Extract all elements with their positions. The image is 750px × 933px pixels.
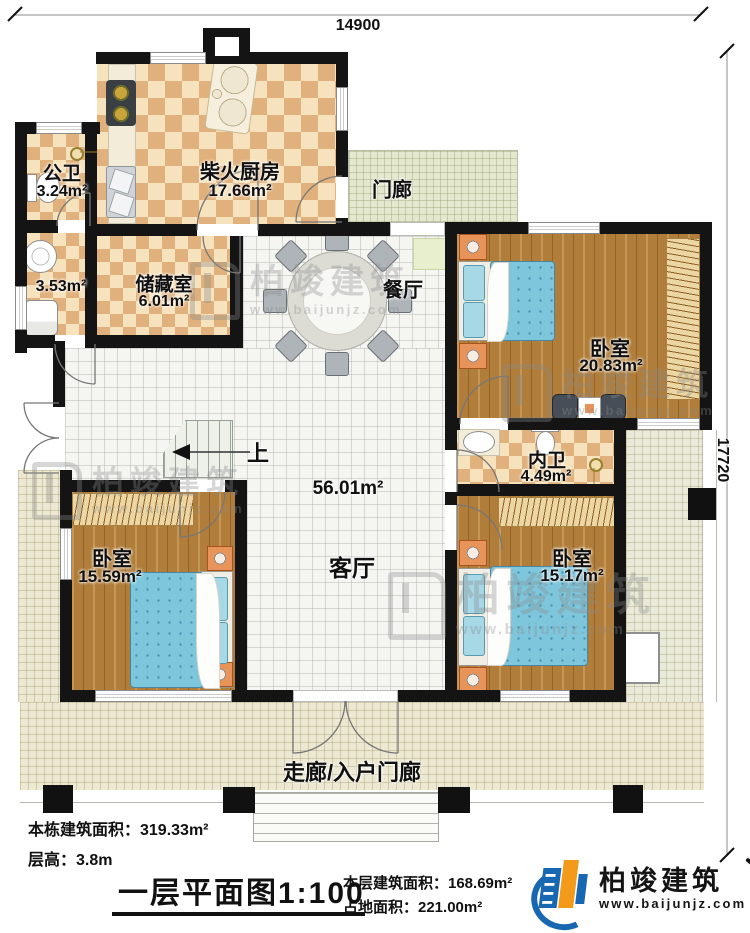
wall (95, 335, 243, 348)
entrance-threshold (293, 690, 398, 702)
room-area-kitchen: 17.66m² (208, 181, 271, 201)
land-area-text: 占地面积：221.00m² (343, 896, 482, 917)
wardrobe (72, 493, 194, 526)
wall (445, 430, 457, 450)
room-area-bedroom-bl: 15.59m² (78, 567, 141, 587)
wall (447, 690, 500, 702)
wall (235, 480, 247, 702)
dimension-height: 17720 (713, 438, 731, 483)
ceiling-lamp (589, 458, 603, 472)
building-area-text: 本栋建筑面积：319.33m² (28, 816, 209, 840)
bed-sheet (196, 573, 220, 689)
chimney-flue (215, 37, 239, 56)
brand-logo: 柏竣建筑 www.baijunjz.com (533, 858, 746, 920)
bay-window (624, 632, 660, 684)
wall (614, 496, 626, 702)
wall (348, 222, 390, 236)
nightstand (207, 546, 233, 571)
entrance-steps (253, 792, 439, 842)
column (688, 488, 716, 520)
room-area-bedroom-tr: 20.83m² (579, 356, 642, 376)
wall (445, 492, 457, 505)
window (95, 690, 232, 702)
wall (398, 690, 447, 702)
patio-left-floor (18, 470, 60, 702)
room-label-corridor: 走廊/入户门廊 (283, 755, 421, 787)
room-area-inner-bath: 4.49m² (521, 468, 572, 486)
tea-table (578, 397, 601, 420)
wall (85, 134, 97, 348)
title-block: 一层平面图1:100 (112, 868, 365, 933)
stairs-up-label: 上 (247, 436, 269, 468)
wall (88, 220, 97, 233)
wall (700, 222, 712, 430)
wash-basin (463, 431, 495, 453)
room-area-storage: 6.01m² (139, 293, 190, 311)
wall (600, 222, 712, 234)
wall (258, 224, 348, 236)
window (336, 87, 348, 131)
brand-url: www.baijunjz.com (599, 896, 746, 911)
bathtub (24, 300, 58, 336)
wall (336, 52, 348, 87)
wall (53, 341, 65, 407)
nightstand (459, 234, 487, 260)
room-label-porch: 门廊 (372, 174, 412, 203)
wall (60, 480, 180, 492)
column (43, 785, 73, 813)
wall (445, 550, 457, 702)
porch-threshold (390, 222, 445, 236)
gas-stove (106, 80, 136, 126)
floor-plan: 柏竣建筑 www.baijunjz.com 柏竣建筑 www.baijunjz.… (0, 0, 750, 933)
wall (570, 690, 626, 702)
wall (445, 234, 457, 418)
dining-chair (263, 289, 287, 313)
wall (445, 222, 528, 234)
room-label-public-bath: 公卫 (43, 159, 81, 186)
window (637, 418, 700, 430)
nightstand (459, 343, 487, 369)
room-label-living: 客厅 (329, 549, 375, 583)
room-living-floor (247, 478, 445, 690)
wall (445, 418, 460, 430)
wall (614, 428, 626, 496)
column (613, 785, 643, 813)
wall (15, 220, 58, 233)
room-area-public-bath: 3.24m² (37, 183, 88, 201)
brand-stroke-icon (746, 858, 750, 869)
pillow (463, 302, 485, 338)
wall (700, 418, 712, 430)
brand-logo-icon (533, 858, 591, 920)
dining-table-top (303, 267, 371, 335)
window (528, 222, 600, 234)
bed-sheet (487, 568, 511, 666)
floor-area-text: 本层建筑面积：168.69m² (343, 872, 512, 893)
wardrobe (666, 238, 700, 400)
wash-basin (24, 240, 57, 273)
pillow (463, 265, 485, 301)
dimension-width: 14900 (336, 17, 381, 35)
armchair (552, 394, 578, 420)
plan-title: 一层平面图 (118, 877, 278, 910)
wall (97, 224, 197, 236)
window (500, 690, 570, 702)
floor-height-text: 层高：3.8m (28, 846, 112, 870)
column (223, 787, 255, 813)
door-mat (413, 238, 449, 270)
wardrobe (498, 497, 616, 527)
brand-name: 柏竣建筑 (599, 867, 746, 895)
dining-chair (325, 352, 349, 376)
wall (15, 335, 55, 348)
column (438, 787, 470, 813)
bed-sheet (487, 262, 509, 342)
wall (336, 131, 348, 177)
room-label-dining: 餐厅 (383, 274, 423, 303)
wall (60, 690, 95, 702)
window (36, 122, 82, 134)
bed-mattress (130, 572, 204, 688)
window (60, 528, 72, 580)
nightstand (459, 540, 487, 566)
armchair (600, 394, 626, 420)
window (15, 286, 27, 330)
pillow (463, 574, 485, 614)
window (150, 52, 206, 64)
room-area-living: 56.01m² (313, 478, 384, 500)
pillow (463, 616, 485, 656)
wall (230, 236, 243, 335)
wall (60, 470, 72, 702)
room-area-bedroom-br: 15.17m² (540, 566, 603, 586)
room-area-utility: 3.53m² (36, 278, 87, 296)
